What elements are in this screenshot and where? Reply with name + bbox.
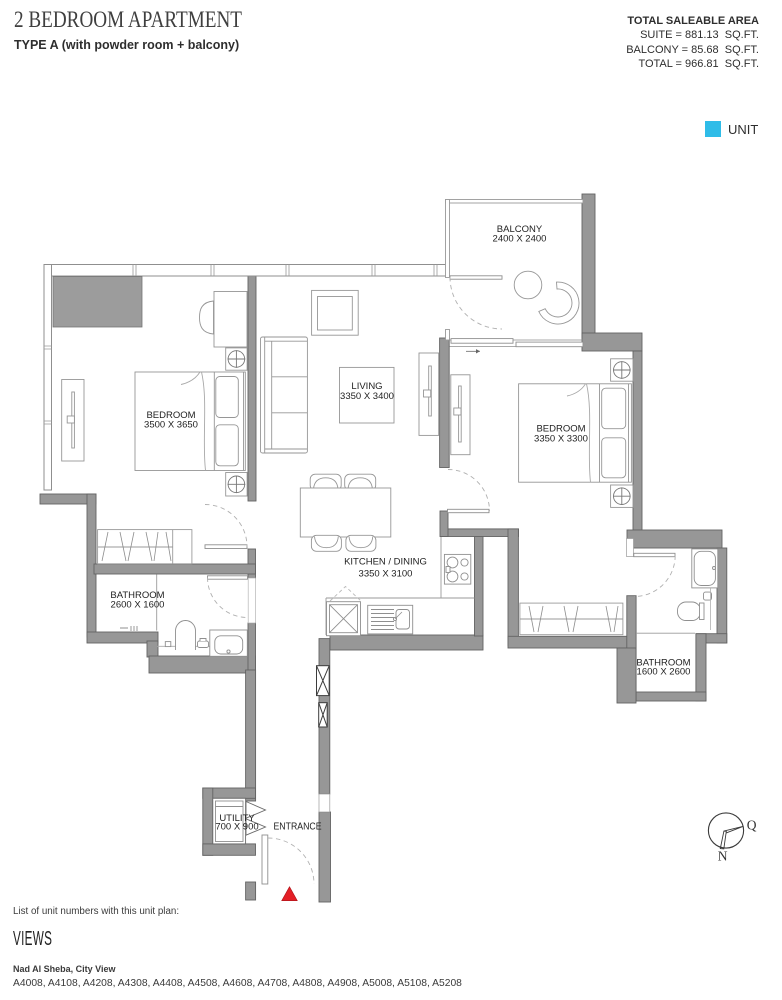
- svg-text:2600 X 1600: 2600 X 1600: [111, 599, 165, 610]
- svg-text:ENTRANCE: ENTRANCE: [273, 821, 321, 833]
- svg-text:3350 X 3100: 3350 X 3100: [359, 568, 413, 579]
- svg-text:3350 X 3300: 3350 X 3300: [534, 433, 588, 444]
- svg-text:3500 X 3650: 3500 X 3650: [144, 420, 198, 431]
- svg-text:2400 X 2400: 2400 X 2400: [493, 234, 547, 245]
- svg-text:Q: Q: [747, 818, 757, 833]
- svg-text:1600 X 2600: 1600 X 2600: [637, 667, 691, 678]
- svg-text:KITCHEN / DINING: KITCHEN / DINING: [344, 557, 427, 568]
- svg-text:N: N: [718, 849, 728, 864]
- svg-text:3350 X 3400: 3350 X 3400: [340, 391, 394, 402]
- svg-text:700 X 900: 700 X 900: [215, 822, 258, 833]
